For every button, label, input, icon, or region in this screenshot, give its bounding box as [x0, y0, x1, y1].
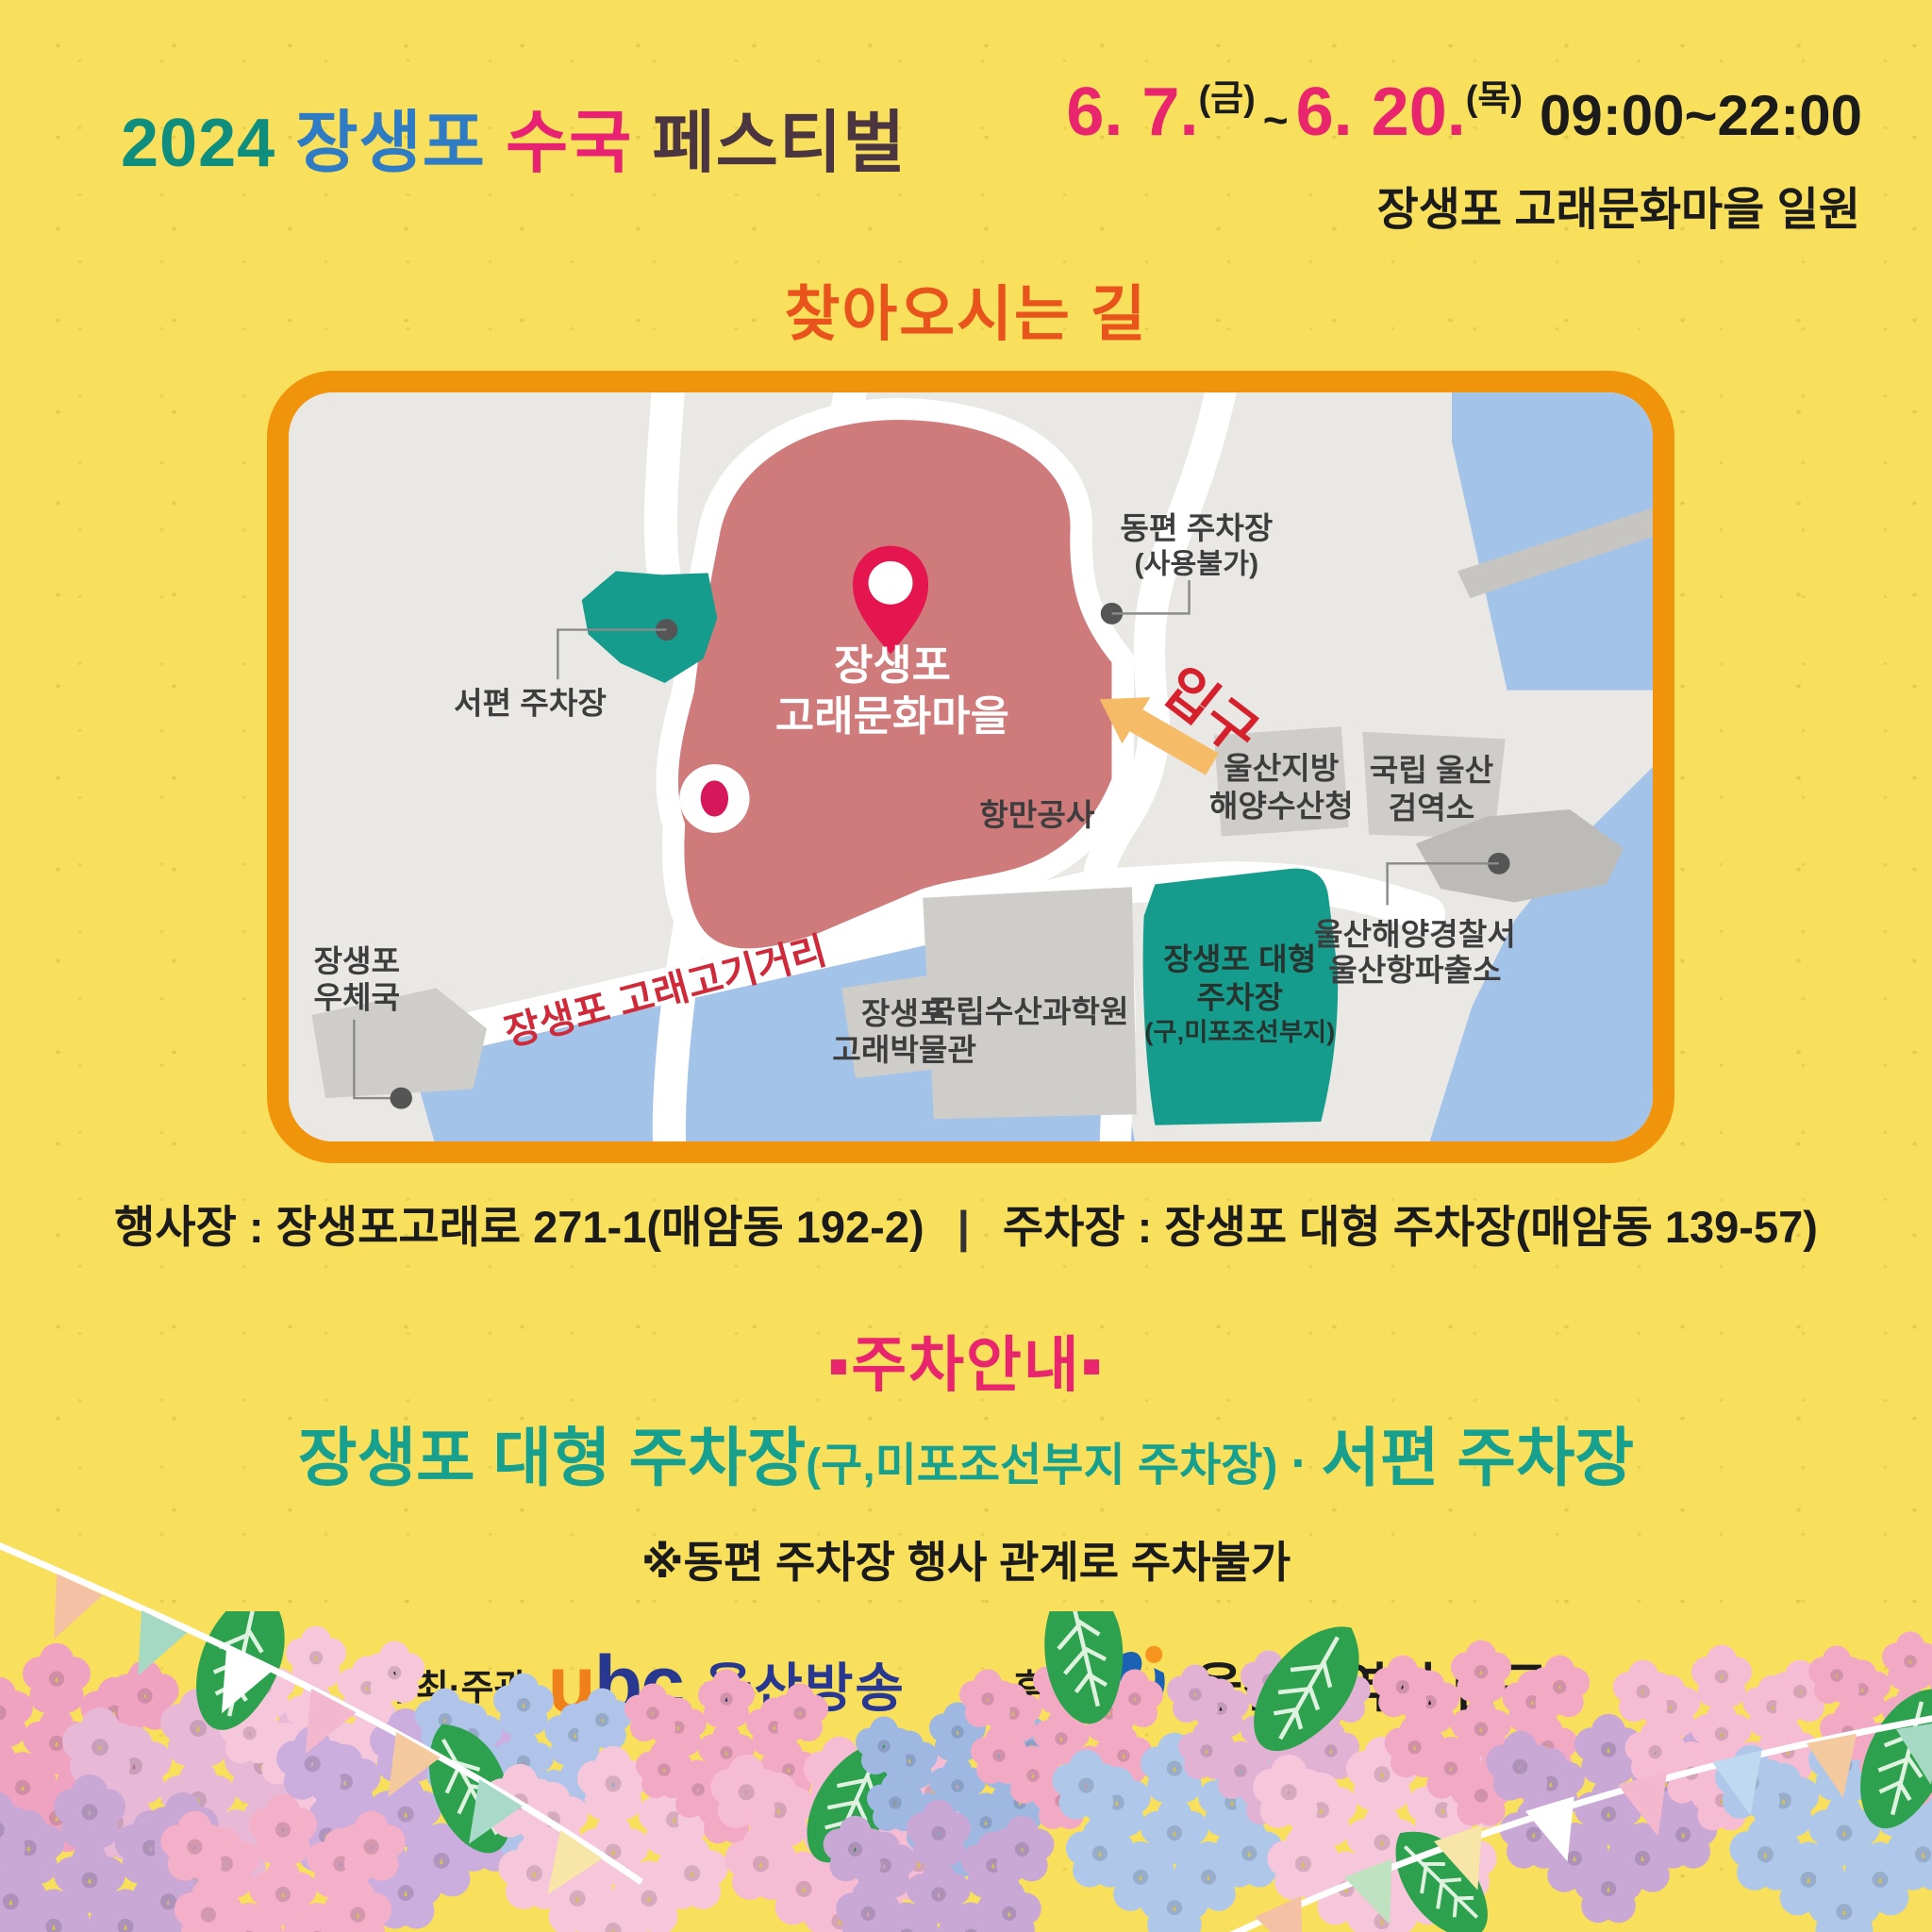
label-west-parking: 서편 주차장: [454, 686, 607, 721]
end-day: (목): [1466, 69, 1523, 121]
label-large-parking-1: 장생포 대형: [1163, 942, 1316, 977]
label-police-1: 울산해양경찰서: [1314, 917, 1516, 952]
label-east-parking: 동편 주차장: [1120, 510, 1273, 545]
label-quarantine-2: 검역소: [1389, 791, 1475, 825]
map-roundabout: [679, 764, 749, 833]
festival-poster: 2024 장생포 수국 페스티벌 6. 7.(금)~6. 20.(목)09:00…: [0, 0, 1932, 1932]
label-port-authority: 항만공사: [979, 797, 1094, 832]
parking-lots-line: 장생포 대형 주차장(구,미포조선부지 주차장)·서편 주차장: [0, 1406, 1932, 1499]
poster-title: 2024 장생포 수국 페스티벌: [121, 87, 906, 186]
main-lot-note: (구,미포조선부지 주차장): [806, 1441, 1277, 1491]
venue-line: 장생포 고래문화마을 일원: [1377, 172, 1860, 238]
label-post-office-2: 우체국: [313, 980, 400, 1015]
parking-address-label: 주차장 :: [1003, 1202, 1152, 1252]
label-fisheries-1: 울산지방: [1224, 751, 1339, 786]
opening-hours: 09:00~22:00: [1523, 84, 1862, 147]
title-festival: 페스티벌: [652, 106, 906, 181]
schedule: 6. 7.(금)~6. 20.(목)09:00~22:00: [1066, 74, 1862, 151]
label-fisheries-2: 해양수산청: [1209, 789, 1354, 824]
start-day: (금): [1198, 69, 1255, 121]
label-police-2: 울산항파출소: [1328, 953, 1501, 988]
title-year: 2024: [121, 106, 275, 181]
directions-title: 찾아오시는 길: [0, 266, 1932, 353]
label-museum-2: 고래박물관: [832, 1032, 976, 1067]
label-east-parking-note: (사용불가): [1135, 549, 1259, 580]
parking-info-title: ▪주차안내▪: [0, 1317, 1932, 1404]
end-date: 6. 20.: [1296, 75, 1466, 150]
map-canvas: 동편 주차장 (사용불가) 서편 주차장 장생포 고래문화마을 입구 항만공사 …: [289, 392, 1653, 1141]
directions-map: 동편 주차장 (사용불가) 서편 주차장 장생포 고래문화마을 입구 항만공사 …: [267, 371, 1674, 1163]
label-science-institute: 국립수산과학원: [927, 994, 1129, 1029]
parking-warning: ※동편 주차장 행사 관계로 주차불가: [0, 1528, 1932, 1591]
label-village-2: 고래문화마을: [775, 693, 1009, 739]
start-date: 6. 7.: [1066, 75, 1198, 150]
main-lot: 장생포 대형 주차장: [298, 1423, 806, 1494]
lot-separator: ·: [1277, 1435, 1321, 1491]
title-flower: 수국: [506, 106, 632, 181]
label-large-parking-3: (구,미포조선부지): [1144, 1017, 1335, 1046]
address-line: 행사장 : 장생포고래로 271-1(매암동 192-2) | 주차장 : 장생…: [0, 1191, 1932, 1256]
label-village-1: 장생포: [834, 643, 951, 689]
label-large-parking-2: 주차장: [1196, 980, 1283, 1015]
hydrangea-flowers-decoration: [0, 1611, 1932, 1932]
event-address-label: 행사장 :: [114, 1202, 263, 1252]
address-divider: |: [937, 1202, 991, 1252]
label-quarantine-1: 국립 울산: [1370, 753, 1493, 788]
title-place: 장생포: [295, 106, 486, 181]
event-address-value: 장생포고래로 271-1(매암동 192-2): [276, 1202, 924, 1252]
label-post-office-1: 장생포: [313, 943, 400, 978]
parking-address-value: 장생포 대형 주차장(매암동 139-57): [1164, 1202, 1817, 1252]
date-tilde: ~: [1256, 95, 1296, 144]
west-lot: 서편 주차장: [1321, 1423, 1634, 1494]
